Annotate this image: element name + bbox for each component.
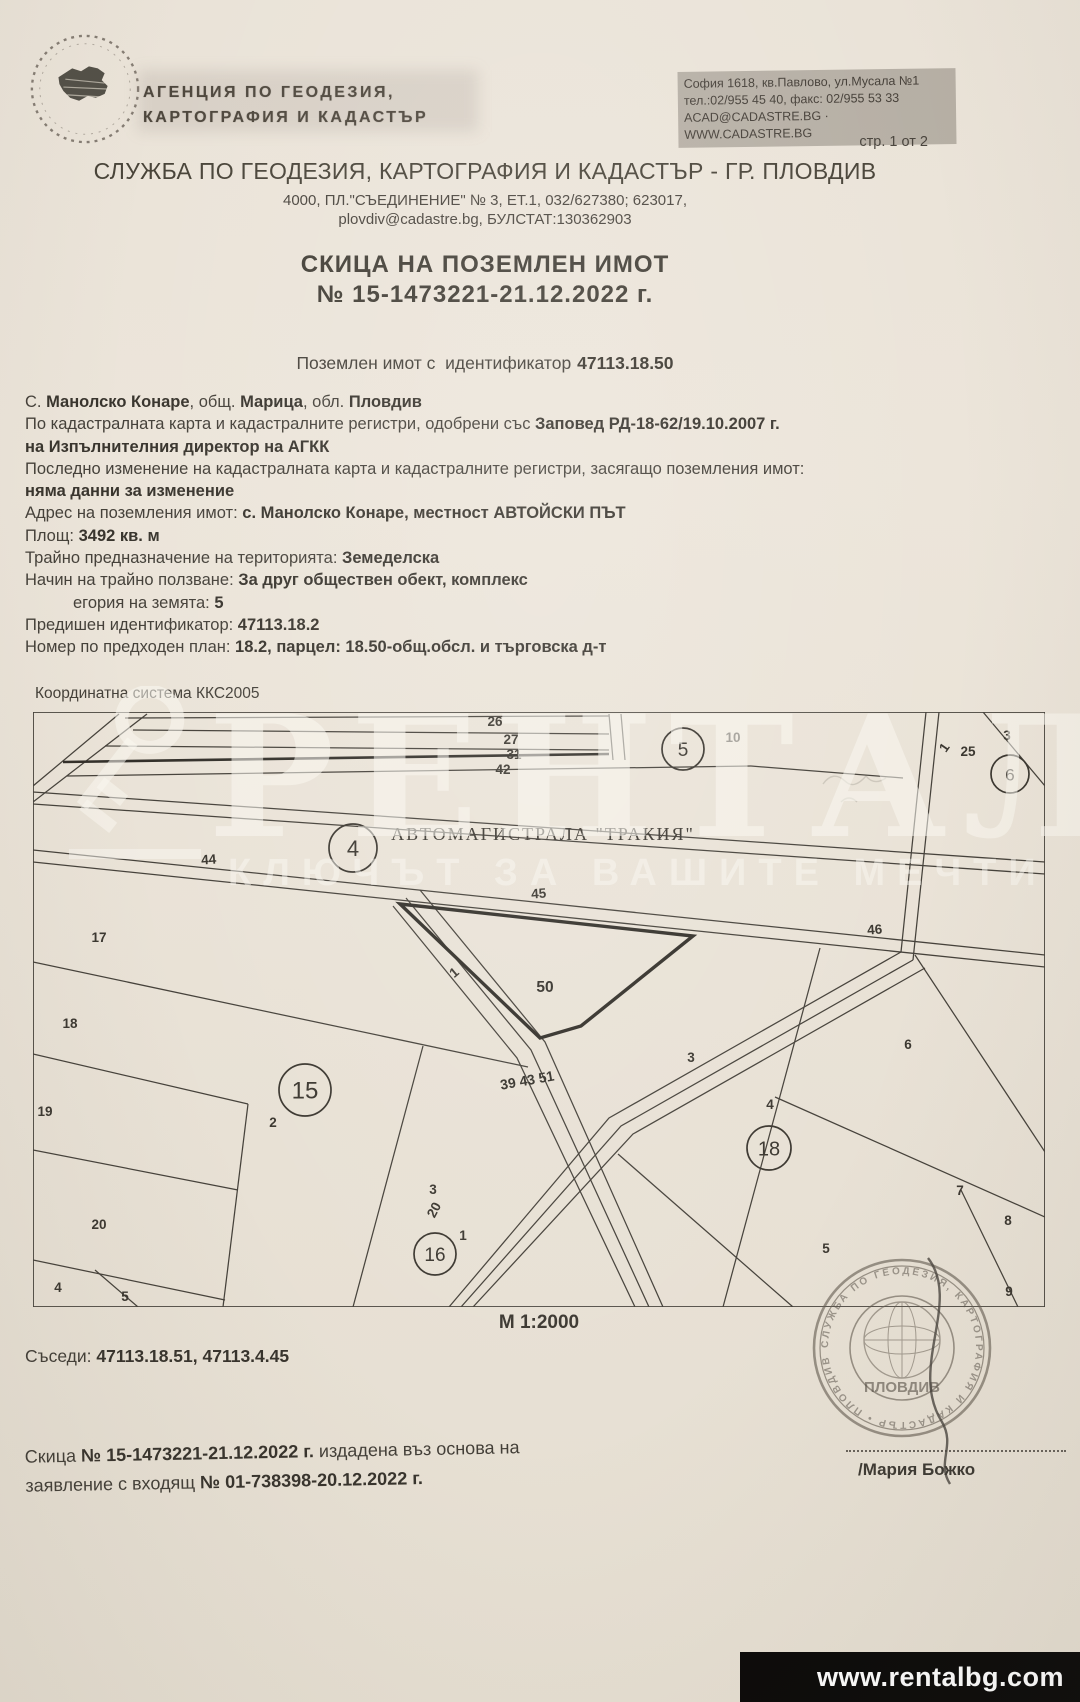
parcel-identifier-line: Поземлен имот с идентификатор47113.18.50 [0, 353, 970, 374]
parcel-boundary-line [353, 1046, 423, 1307]
parcel-number-label: 19 [37, 1104, 52, 1119]
office-address: 4000, ПЛ."СЪЕДИНЕНИЕ" № 3, ЕТ.1, 032/627… [0, 192, 970, 209]
signature-dotted-line [846, 1432, 1066, 1452]
sector-number: 18 [758, 1138, 780, 1160]
neighbors-line: Съседи: 47113.18.51, 47113.4.45 [25, 1346, 289, 1367]
parcel-boundary-line [105, 746, 609, 750]
sector-number: 6 [1005, 765, 1014, 784]
seal-ring-text: СЛУЖБА ПО ГЕОДЕЗИЯ, КАРТОГРАФИЯ И КАДАСТ… [790, 1240, 984, 1430]
document-title: СКИЦА НА ПОЗЕМЛЕН ИМОТ [0, 251, 970, 279]
property-details: С. Манолско Конаре, общ. Марица, обл. Пл… [25, 391, 1065, 659]
parcel-number-label: 7 [956, 1183, 964, 1198]
issue-line1-pre: Скица [25, 1446, 82, 1467]
site-url: www.rentalbg.com [740, 1652, 1080, 1702]
agency-name-line1: АГЕНЦИЯ ПО ГЕОДЕЗИЯ, [143, 80, 428, 105]
parcel-number-label: 45 [531, 885, 548, 901]
sector-number: 5 [678, 740, 689, 761]
issue-line2-pre: заявление с входящ [25, 1472, 200, 1495]
parcel-boundary-line [33, 1054, 248, 1104]
parcel-number-label: 46 [867, 921, 884, 937]
parcel-number-label: 5 [121, 1289, 129, 1304]
parcel-identifier: 47113.18.50 [577, 353, 673, 373]
parcel-boundary-line [775, 1097, 1045, 1217]
parcel-number-label: 4 [54, 1280, 62, 1295]
property-detail-line: Трайно предназначение на територията: Зе… [25, 547, 1065, 569]
cadastral-map-drawing: АВТОМАГИСТРАЛА "ТРАКИЯ"26273142101253444… [33, 712, 1045, 1307]
parcel-number-label: 1 [459, 1228, 467, 1243]
property-detail-line: Последно изменение на кадастралната карт… [25, 458, 1065, 480]
site-footer-bar: www.rentalbg.com [740, 1652, 1080, 1702]
parcel-boundary-line [67, 766, 751, 776]
parcel-identifier-prefix: Поземлен имот с идентификатор [296, 353, 571, 373]
property-detail-line: По кадастралната карта и кадастралните р… [25, 413, 1065, 435]
road-points-label: 39 43 51 [499, 1067, 556, 1092]
parcel-boundary-line [125, 716, 609, 718]
sector-number: 15 [292, 1078, 319, 1105]
parcel-boundary-line [420, 890, 663, 1307]
parcel-number-label: 3 [429, 1182, 437, 1197]
parcel-boundary-line [609, 714, 613, 760]
parcel-boundary-line [901, 712, 926, 952]
parcel-number-label: 3 [687, 1050, 695, 1065]
subject-parcel-outline [400, 904, 693, 1038]
agency-name: АГЕНЦИЯ ПО ГЕОДЕЗИЯ, КАРТОГРАФИЯ И КАДАС… [143, 80, 428, 130]
issue-sketch-number: № 15-1473221-21.12.2022 г. [81, 1441, 314, 1465]
issue-line1-post: издадена въз основа на [314, 1437, 520, 1461]
parcel-boundary-line [95, 1270, 138, 1307]
neighbors-label: Съседи: [25, 1346, 92, 1366]
property-detail-line: Предишен идентификатор: 47113.18.2 [25, 614, 1065, 636]
parcel-number-label: 42 [495, 762, 510, 777]
parcel-number-label: 2 [269, 1115, 277, 1130]
parcel-boundary-line [33, 1150, 238, 1190]
parcel-number-label: 26 [487, 714, 503, 729]
page-number: стр. 1 от 2 [859, 134, 928, 150]
parcel-number-label: 8 [1004, 1213, 1012, 1228]
seal-globe [864, 1302, 940, 1378]
parcel-number-label: 20 [91, 1217, 106, 1232]
property-detail-line: Адрес на поземления имот: с. Манолско Ко… [25, 502, 1065, 524]
parcel-boundary-line [223, 1104, 248, 1307]
office-title: СЛУЖБА ПО ГЕОДЕЗИЯ, КАРТОГРАФИЯ И КАДАСТ… [0, 158, 970, 185]
cadastral-map: АВТОМАГИСТРАЛА "ТРАКИЯ"26273142101253444… [33, 712, 1045, 1307]
parcel-boundary-line [913, 712, 939, 960]
map-border [33, 712, 1045, 1307]
property-detail-line: няма данни за изменение [25, 480, 1065, 502]
property-detail-line: Номер по предходен план: 18.2, парцел: 1… [25, 636, 1065, 658]
property-detail-line: С. Манолско Конаре, общ. Марица, обл. Пл… [25, 391, 1065, 413]
parcel-boundary-line [33, 714, 147, 802]
office-email: plovdiv@cadastre.bg, БУЛСТАТ:130362903 [0, 211, 970, 228]
issue-statement: Скица № 15-1473221-21.12.2022 г. издаден… [25, 1429, 726, 1500]
parcel-number-label: 10 [725, 730, 740, 745]
parcel-number-label: 20 [424, 1200, 444, 1220]
parcel-number-label: 27 [503, 732, 518, 747]
parcel-number-label: 3 [1003, 728, 1011, 743]
parcel-boundary-line [915, 955, 1045, 1152]
coordinate-system-label: Координатна система ККС2005 [35, 685, 260, 703]
issue-application-number: № 01-738398-20.12.2022 г. [200, 1468, 423, 1492]
property-detail-line: Начин на трайно ползване: За друг общест… [25, 569, 1065, 591]
parcel-boundary-line [33, 862, 1045, 967]
parcel-number-label: 17 [91, 930, 106, 945]
subject-parcel-number: 50 [536, 979, 553, 996]
parcel-number-label: 1 [936, 740, 953, 755]
agency-name-line2: КАРТОГРАФИЯ И КАДАСТЪР [143, 105, 428, 130]
property-detail-line: на Изпълнителния директор на АГКК [25, 436, 1065, 458]
parcel-number-label: 44 [201, 851, 218, 867]
sector-number: 4 [347, 836, 359, 861]
sector-number: 16 [424, 1245, 445, 1266]
parcel-number-label: 25 [960, 744, 976, 759]
property-detail-line: Площ: 3492 кв. м [25, 525, 1065, 547]
parcel-boundary-line [133, 730, 609, 734]
parcel-boundary-line [33, 1260, 225, 1300]
parcel-boundary-line [33, 850, 1045, 955]
document-number: № 15-1473221-21.12.2022 г. [0, 281, 970, 309]
parcel-boundary-line [618, 1154, 793, 1307]
neighbors-value: 47113.18.51, 47113.4.45 [96, 1346, 289, 1366]
pencil-scribble [823, 776, 886, 802]
official-seal: СЛУЖБА ПО ГЕОДЕЗИЯ, КАРТОГРАФИЯ И КАДАСТ… [790, 1240, 1020, 1490]
property-detail-line: егория на земята: 5 [25, 592, 1065, 614]
parcel-number-label: 4 [766, 1097, 774, 1112]
signer-name: /Мария Божко [858, 1460, 1080, 1480]
parcel-boundary-line [751, 766, 903, 778]
agency-round-stamp [26, 28, 144, 150]
parcel-boundary-line [621, 714, 625, 760]
seal-city: ПЛОВДИВ [864, 1379, 940, 1396]
highway-label: АВТОМАГИСТРАЛА "ТРАКИЯ" [391, 824, 695, 844]
parcel-number-label: 31 [506, 747, 522, 762]
parcel-number-label: 1 [446, 964, 462, 981]
parcel-number-label: 18 [62, 1016, 78, 1031]
parcel-number-label: 6 [904, 1037, 912, 1052]
emphasized-boundary-line [63, 754, 609, 762]
cadastre-sketch-document: АГЕНЦИЯ ПО ГЕОДЕЗИЯ, КАРТОГРАФИЯ И КАДАС… [0, 0, 1080, 1702]
